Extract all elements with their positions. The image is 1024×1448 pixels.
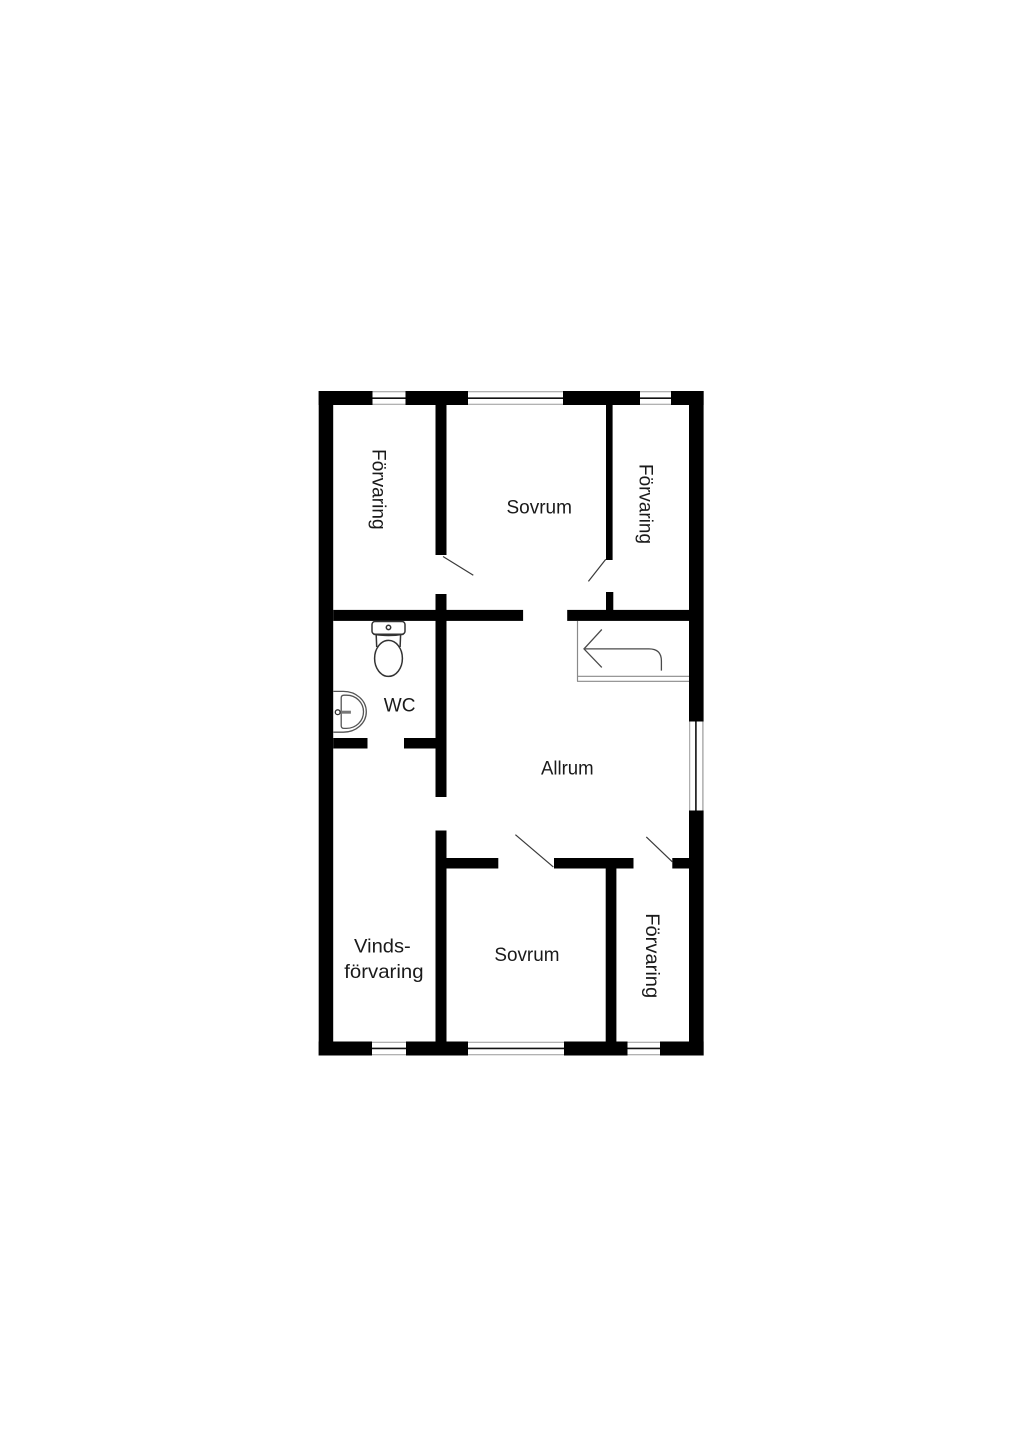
svg-text:WC: WC	[384, 696, 416, 717]
svg-text:Allrum: Allrum	[541, 757, 594, 779]
svg-text:Förvaring: Förvaring	[368, 449, 390, 530]
svg-text:Förvaring: Förvaring	[641, 913, 663, 998]
svg-text:Sovrum: Sovrum	[494, 944, 559, 966]
svg-text:förvaring: förvaring	[344, 961, 423, 983]
svg-text:Förvaring: Förvaring	[635, 464, 657, 544]
svg-text:Vinds-: Vinds-	[354, 936, 411, 958]
svg-text:Sovrum: Sovrum	[506, 496, 572, 518]
